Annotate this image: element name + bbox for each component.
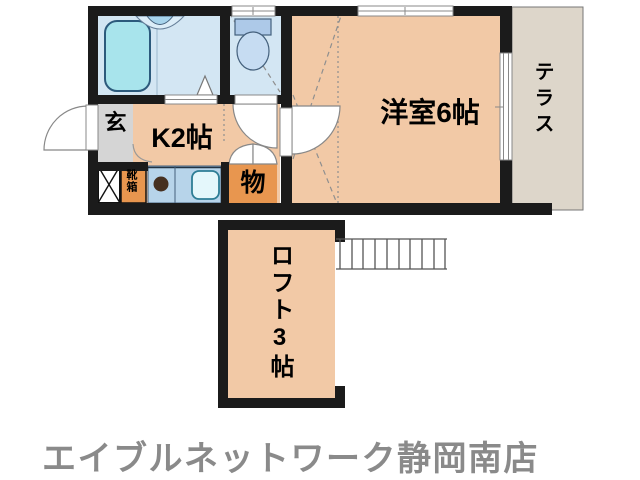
loft-label: ロフト3帖: [267, 243, 291, 381]
storage-label: 物: [229, 171, 277, 196]
kitchen-sink: [192, 171, 219, 199]
toilet-door-opening: [235, 95, 277, 104]
kitchen-label: K2帖: [132, 125, 232, 152]
brand-text: エイブルネットワーク静岡南店: [42, 431, 539, 480]
floorplan-page: { "colors": { "wall": "#1b1b1b", "room_f…: [0, 0, 640, 480]
bathtub: [105, 21, 150, 91]
terrace-label: テラス: [532, 61, 552, 139]
entrance-door-swing: [44, 106, 88, 150]
western-room-label: 洋室6帖: [330, 99, 530, 127]
toilet-bowl: [237, 32, 269, 70]
entrance-label: 玄: [98, 112, 133, 134]
stove-burner: [154, 177, 169, 192]
ladder: [336, 239, 447, 269]
shoe-cabinet-label: 靴箱: [125, 169, 136, 193]
room-door-leaf: [280, 108, 292, 156]
entrance-door-leaf: [86, 105, 98, 150]
